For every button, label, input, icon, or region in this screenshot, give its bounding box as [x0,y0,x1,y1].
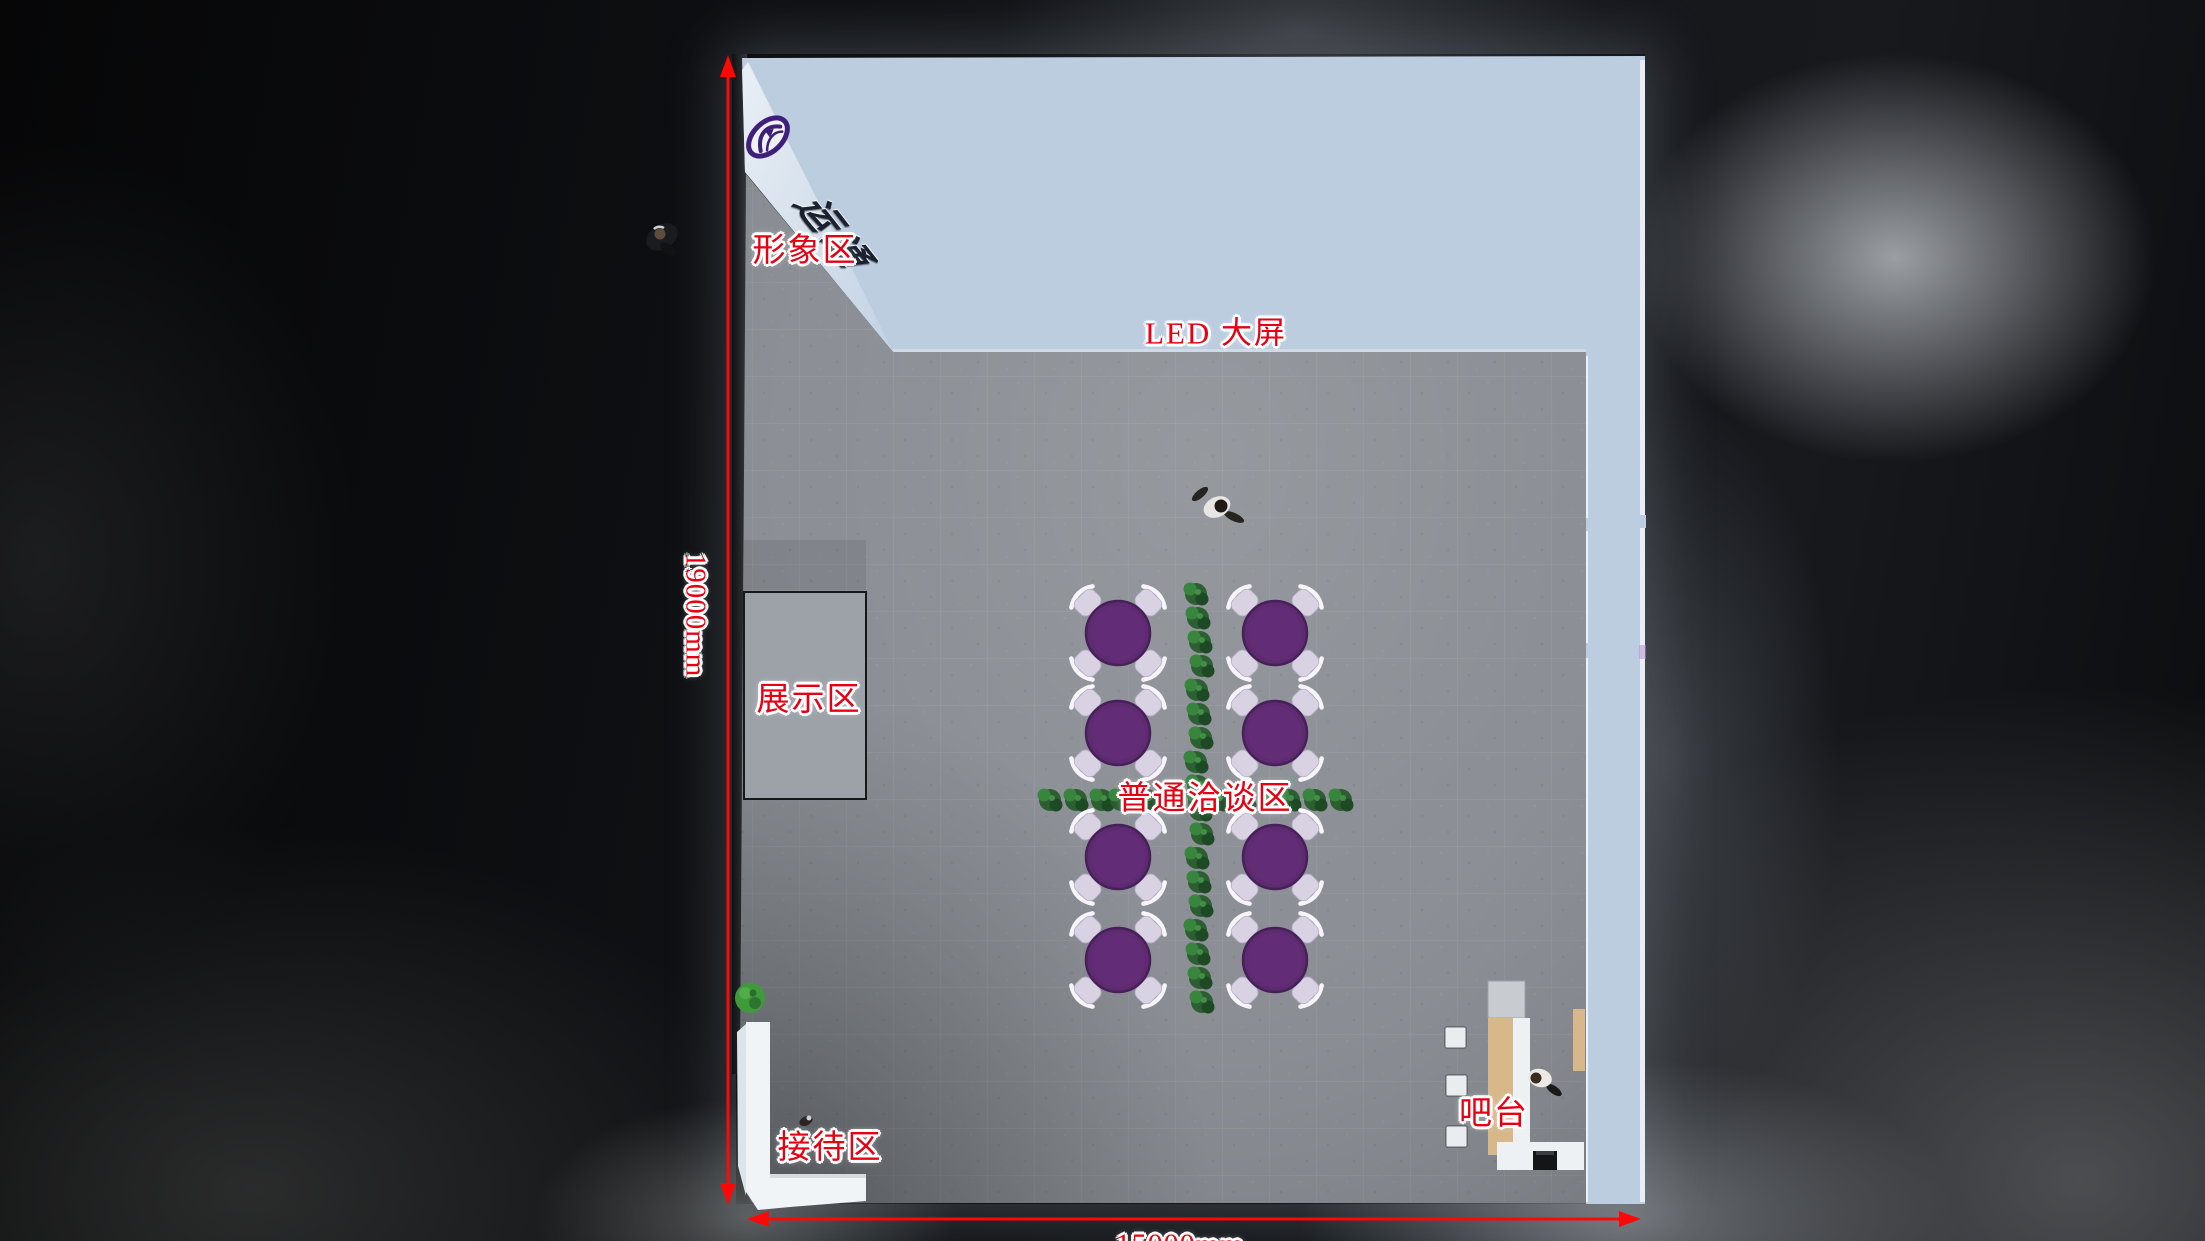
panel-seam [1639,515,1646,528]
dimension-height-label: 19000mm [679,553,712,678]
label-image-area: 形象区 [753,223,858,271]
label-reception-area: 接待区 [778,1120,883,1168]
display-platform-shadow [744,540,866,590]
floor-plan-render [0,0,2205,1241]
booth-render-stage: 运通 形象区 LED 大屏 展示区 普通洽谈区 接待区 吧台 19000mm 1… [0,0,2205,1241]
panel-seam [1639,645,1646,659]
arrow-down-icon [720,1183,736,1205]
bar-cabinet [1488,981,1525,1018]
label-display-area: 展示区 [757,672,862,720]
label-negotiation-area: 普通洽谈区 [1118,771,1293,819]
label-bar-area: 吧台 [1459,1086,1529,1134]
bar-wall-shelf [1573,1009,1585,1071]
arrow-right-icon [1619,1211,1641,1227]
dimension-width-label: 15000mm [1116,1228,1245,1241]
person-outside-booth [641,218,683,258]
reception-desk-inner-shadow [770,1174,866,1178]
arrow-left-icon [747,1211,769,1227]
reception-desk-side [737,1024,746,1196]
dimension-line-vertical [727,70,730,1190]
dimension-line-horizontal [762,1218,1628,1221]
topiary-plant [735,983,765,1013]
bar-stool [1445,1027,1466,1048]
label-led-screen: LED 大屏 [1145,308,1287,353]
wall-panel-edge [1640,60,1645,1202]
espresso-machine-top [1536,1151,1554,1155]
